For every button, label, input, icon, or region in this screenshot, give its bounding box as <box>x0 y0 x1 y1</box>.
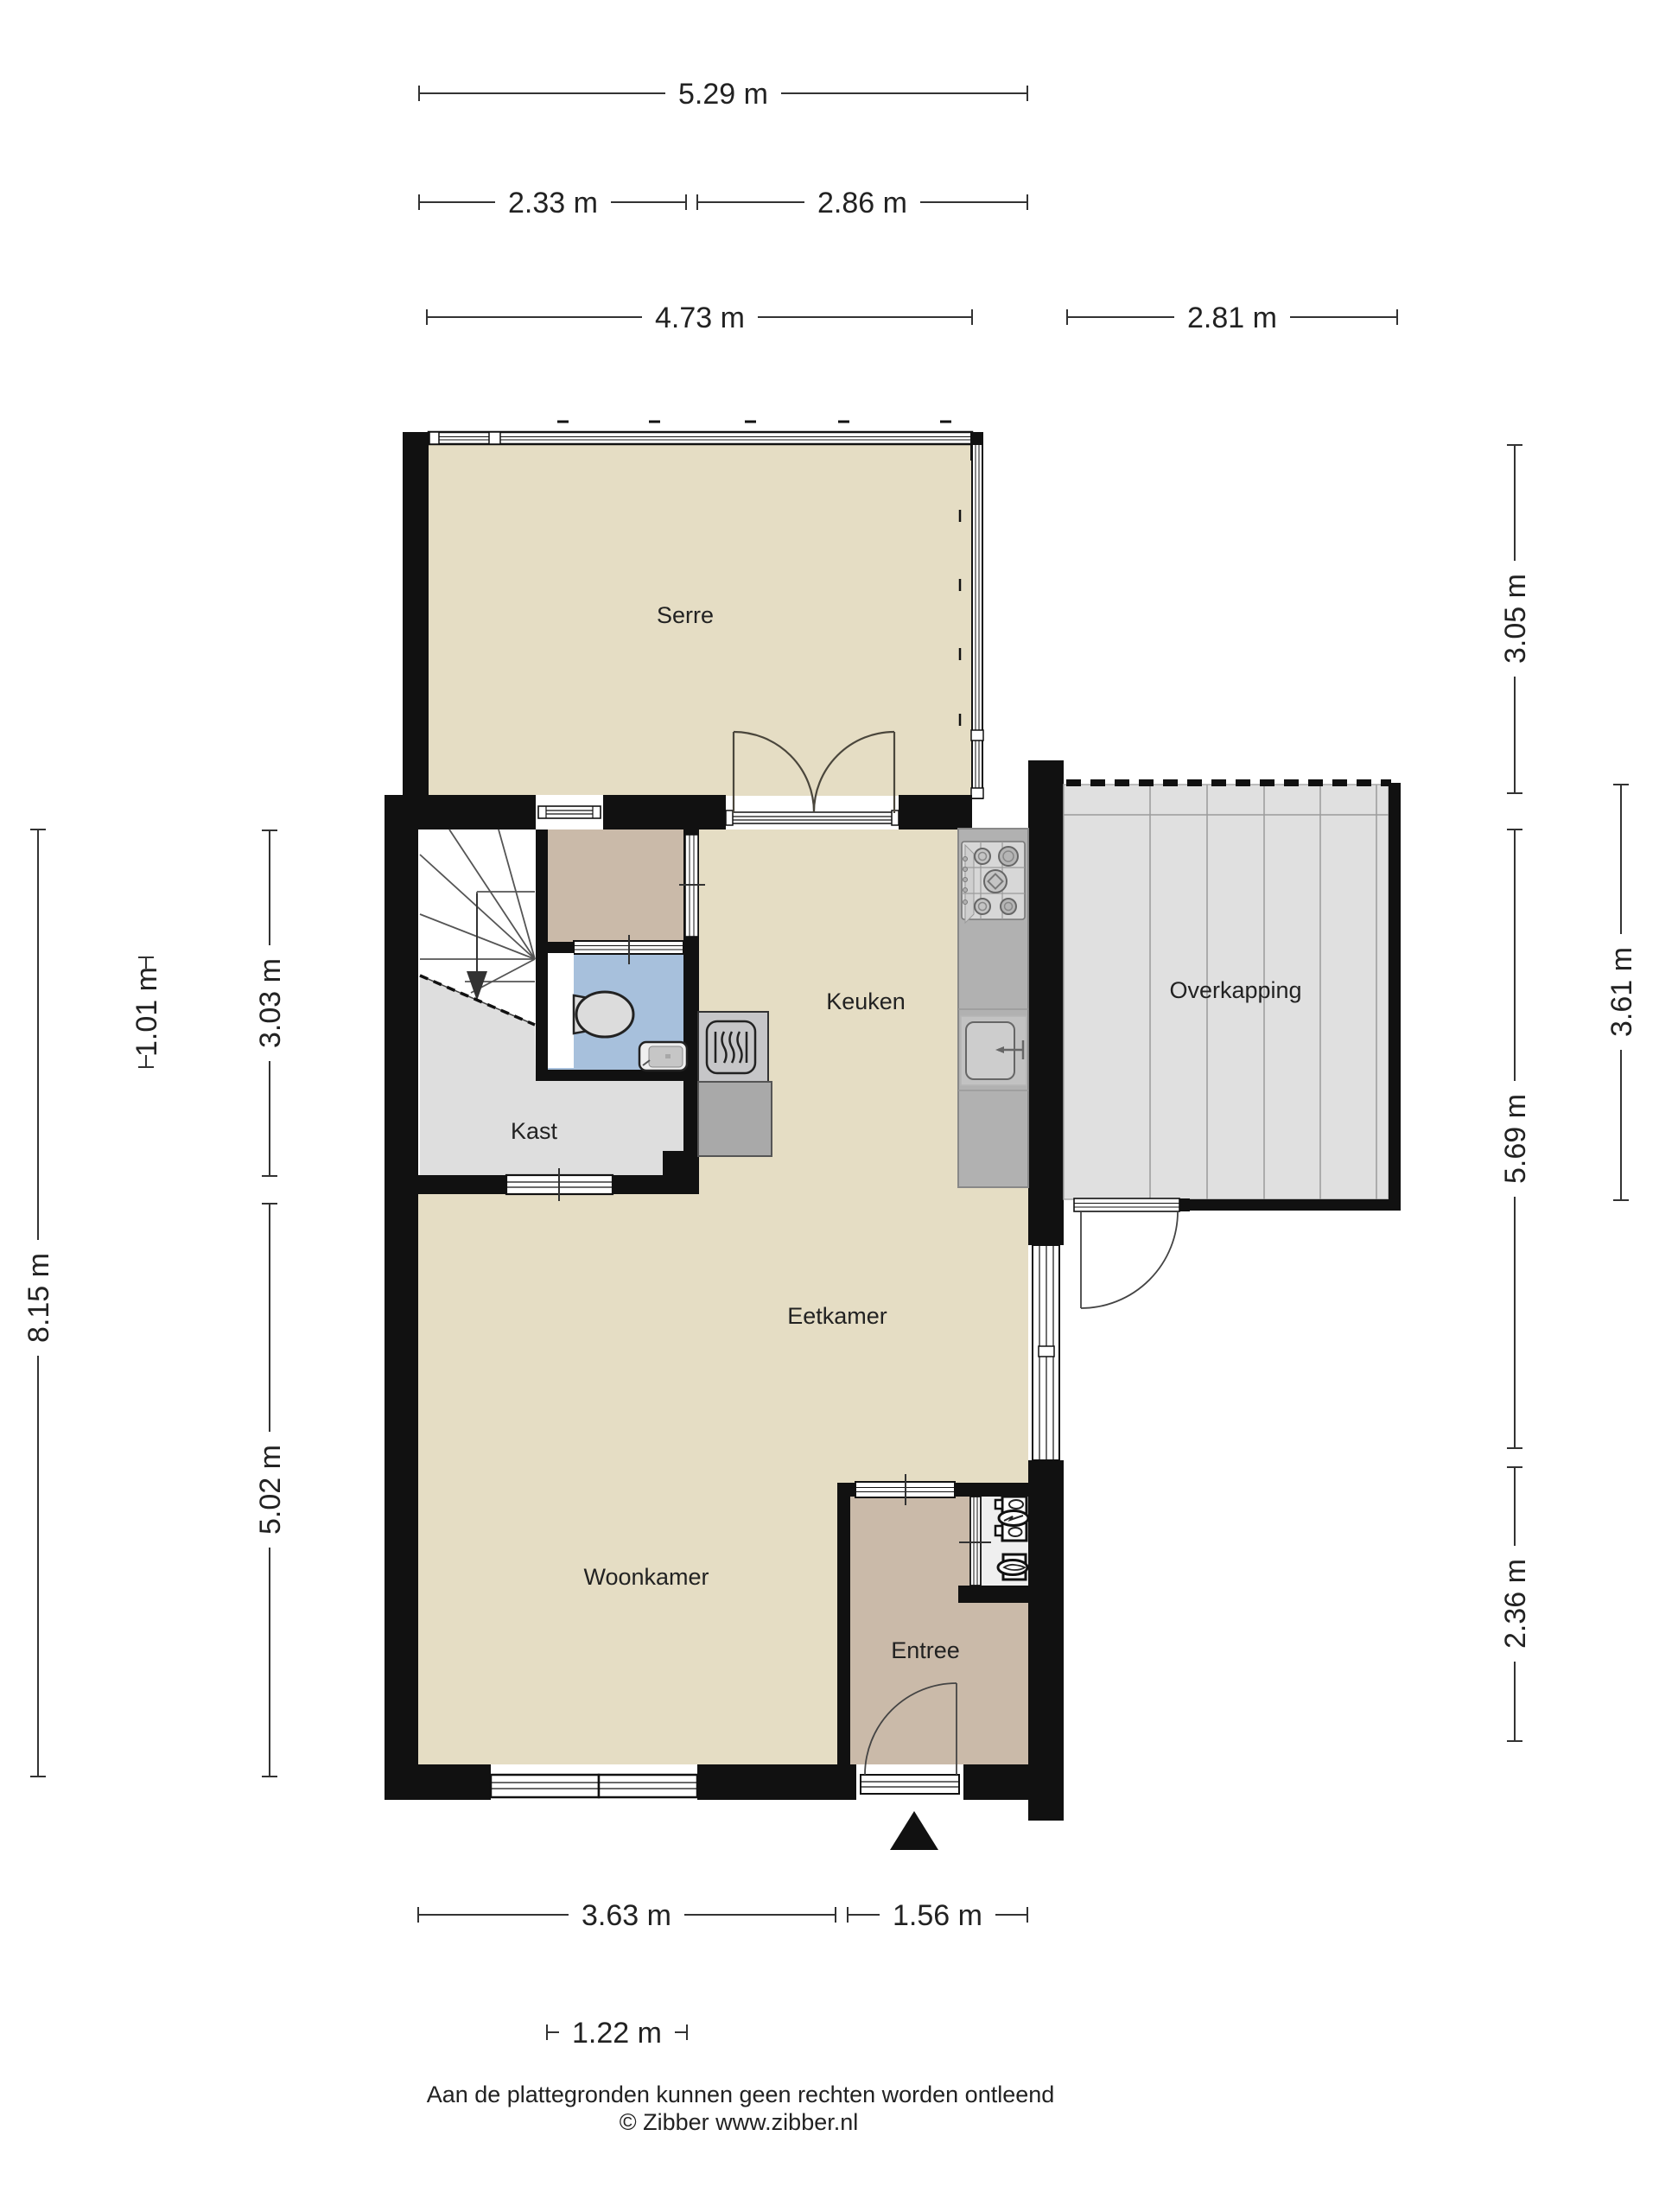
svg-text:2.33 m: 2.33 m <box>508 187 598 219</box>
svg-text:Kast: Kast <box>511 1118 558 1144</box>
svg-text:3.63 m: 3.63 m <box>582 1899 671 1932</box>
svg-text:8.15 m: 8.15 m <box>22 1253 55 1343</box>
svg-text:3.03 m: 3.03 m <box>254 958 287 1048</box>
svg-text:Aan de plattegronden kunnen ge: Aan de plattegronden kunnen geen rechten… <box>427 2082 1055 2107</box>
svg-text:5.02 m: 5.02 m <box>254 1445 287 1535</box>
svg-text:4.73 m: 4.73 m <box>655 302 745 334</box>
svg-text:2.86 m: 2.86 m <box>817 187 907 219</box>
svg-text:Eetkamer: Eetkamer <box>787 1303 887 1329</box>
svg-text:Entree: Entree <box>891 1637 960 1663</box>
svg-text:1.56 m: 1.56 m <box>893 1899 982 1932</box>
svg-text:1.01 m: 1.01 m <box>130 967 163 1057</box>
svg-text:3.05 m: 3.05 m <box>1499 574 1532 664</box>
svg-text:Woonkamer: Woonkamer <box>583 1564 709 1590</box>
svg-text:Serre: Serre <box>657 602 714 628</box>
svg-text:© Zibber www.zibber.nl: © Zibber www.zibber.nl <box>620 2109 859 2135</box>
svg-text:Overkapping: Overkapping <box>1169 977 1301 1003</box>
svg-text:Keuken: Keuken <box>826 988 906 1014</box>
svg-text:5.29 m: 5.29 m <box>678 78 768 111</box>
svg-text:3.61 m: 3.61 m <box>1605 947 1638 1037</box>
svg-text:2.81 m: 2.81 m <box>1187 302 1277 334</box>
svg-text:1.22 m: 1.22 m <box>572 2017 662 2050</box>
svg-text:5.69 m: 5.69 m <box>1499 1094 1532 1184</box>
svg-text:2.36 m: 2.36 m <box>1499 1559 1532 1649</box>
